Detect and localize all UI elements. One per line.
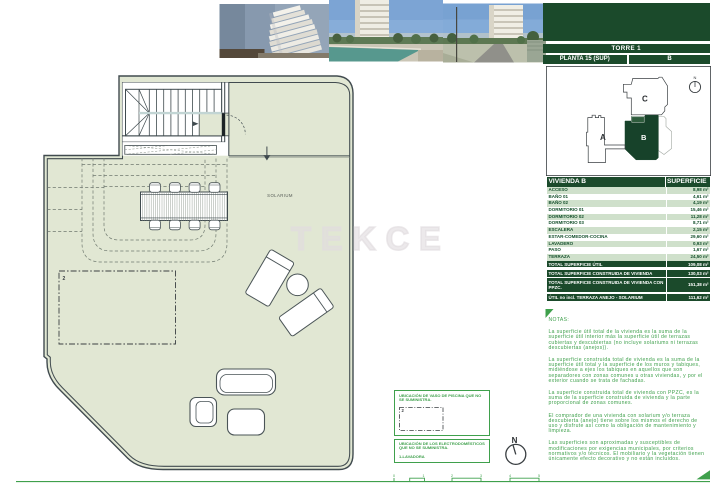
svg-text:2: 2: [63, 276, 66, 282]
svg-text:5: 5: [538, 474, 540, 478]
svg-text:2: 2: [451, 474, 453, 478]
svg-text:2: 2: [402, 408, 405, 413]
svg-text:N: N: [512, 436, 518, 445]
svg-text:C: C: [642, 94, 648, 103]
svg-text:SOLARIUM: SOLARIUM: [267, 193, 293, 198]
svg-text:B: B: [641, 133, 647, 142]
svg-text:0: 0: [393, 474, 395, 478]
svg-text:4: 4: [509, 474, 511, 478]
svg-text:3: 3: [480, 474, 482, 478]
svg-text:1: 1: [423, 474, 425, 478]
svg-text:N: N: [694, 75, 697, 80]
svg-text:A: A: [600, 133, 606, 142]
